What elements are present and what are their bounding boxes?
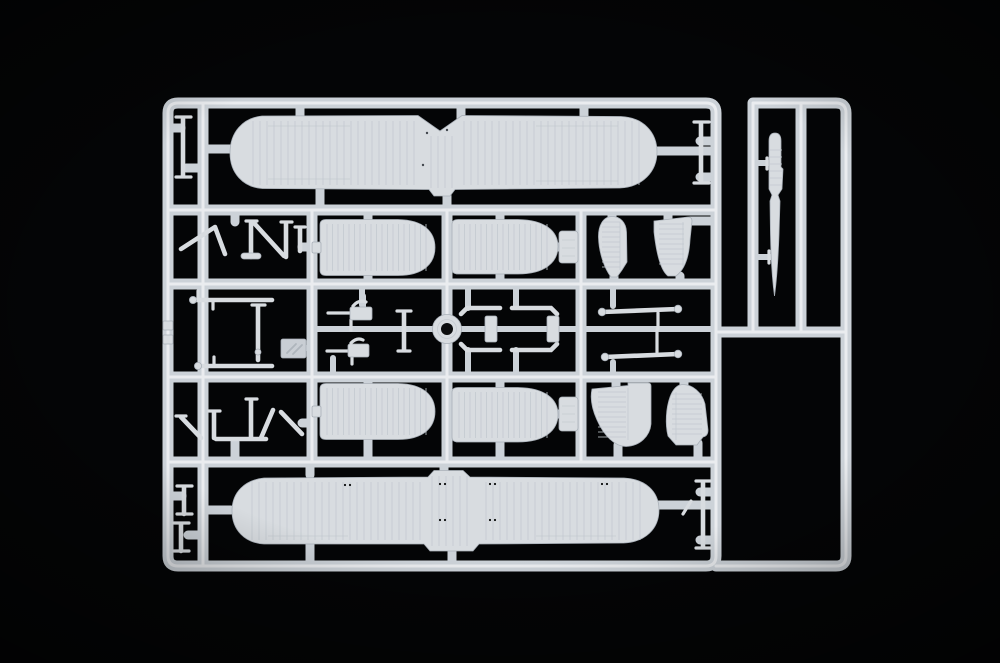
sprue-photo: Photograph of a light-grey injection-mou… — [0, 0, 1000, 663]
float-panel-1 — [312, 220, 435, 276]
gun-ring — [433, 315, 462, 344]
float-panel-3 — [312, 384, 435, 440]
long-strut-rods — [598, 305, 682, 361]
lower-wing — [232, 471, 659, 552]
fin-c — [591, 383, 651, 447]
strut-cluster-lower — [176, 399, 302, 439]
hatch-tab — [559, 231, 578, 263]
rail-gate-nub — [163, 335, 173, 344]
upper-wing-hole — [446, 129, 448, 131]
fin-b — [654, 217, 692, 276]
upper-wing-hole — [426, 132, 428, 134]
rail-gate-nub — [163, 321, 173, 330]
upper-wing-body — [230, 116, 657, 197]
keel-blade — [767, 133, 783, 296]
fin-d — [666, 385, 708, 446]
photo-stage: Photograph of a light-grey injection-mou… — [0, 0, 1000, 663]
part-tag — [281, 339, 306, 358]
machine-guns — [327, 301, 411, 364]
upper-wing-hole — [422, 164, 424, 166]
float-panel-4 — [452, 388, 578, 443]
upper-wing — [230, 116, 657, 197]
fin-a — [598, 217, 627, 278]
float-panel-2 — [452, 220, 578, 275]
